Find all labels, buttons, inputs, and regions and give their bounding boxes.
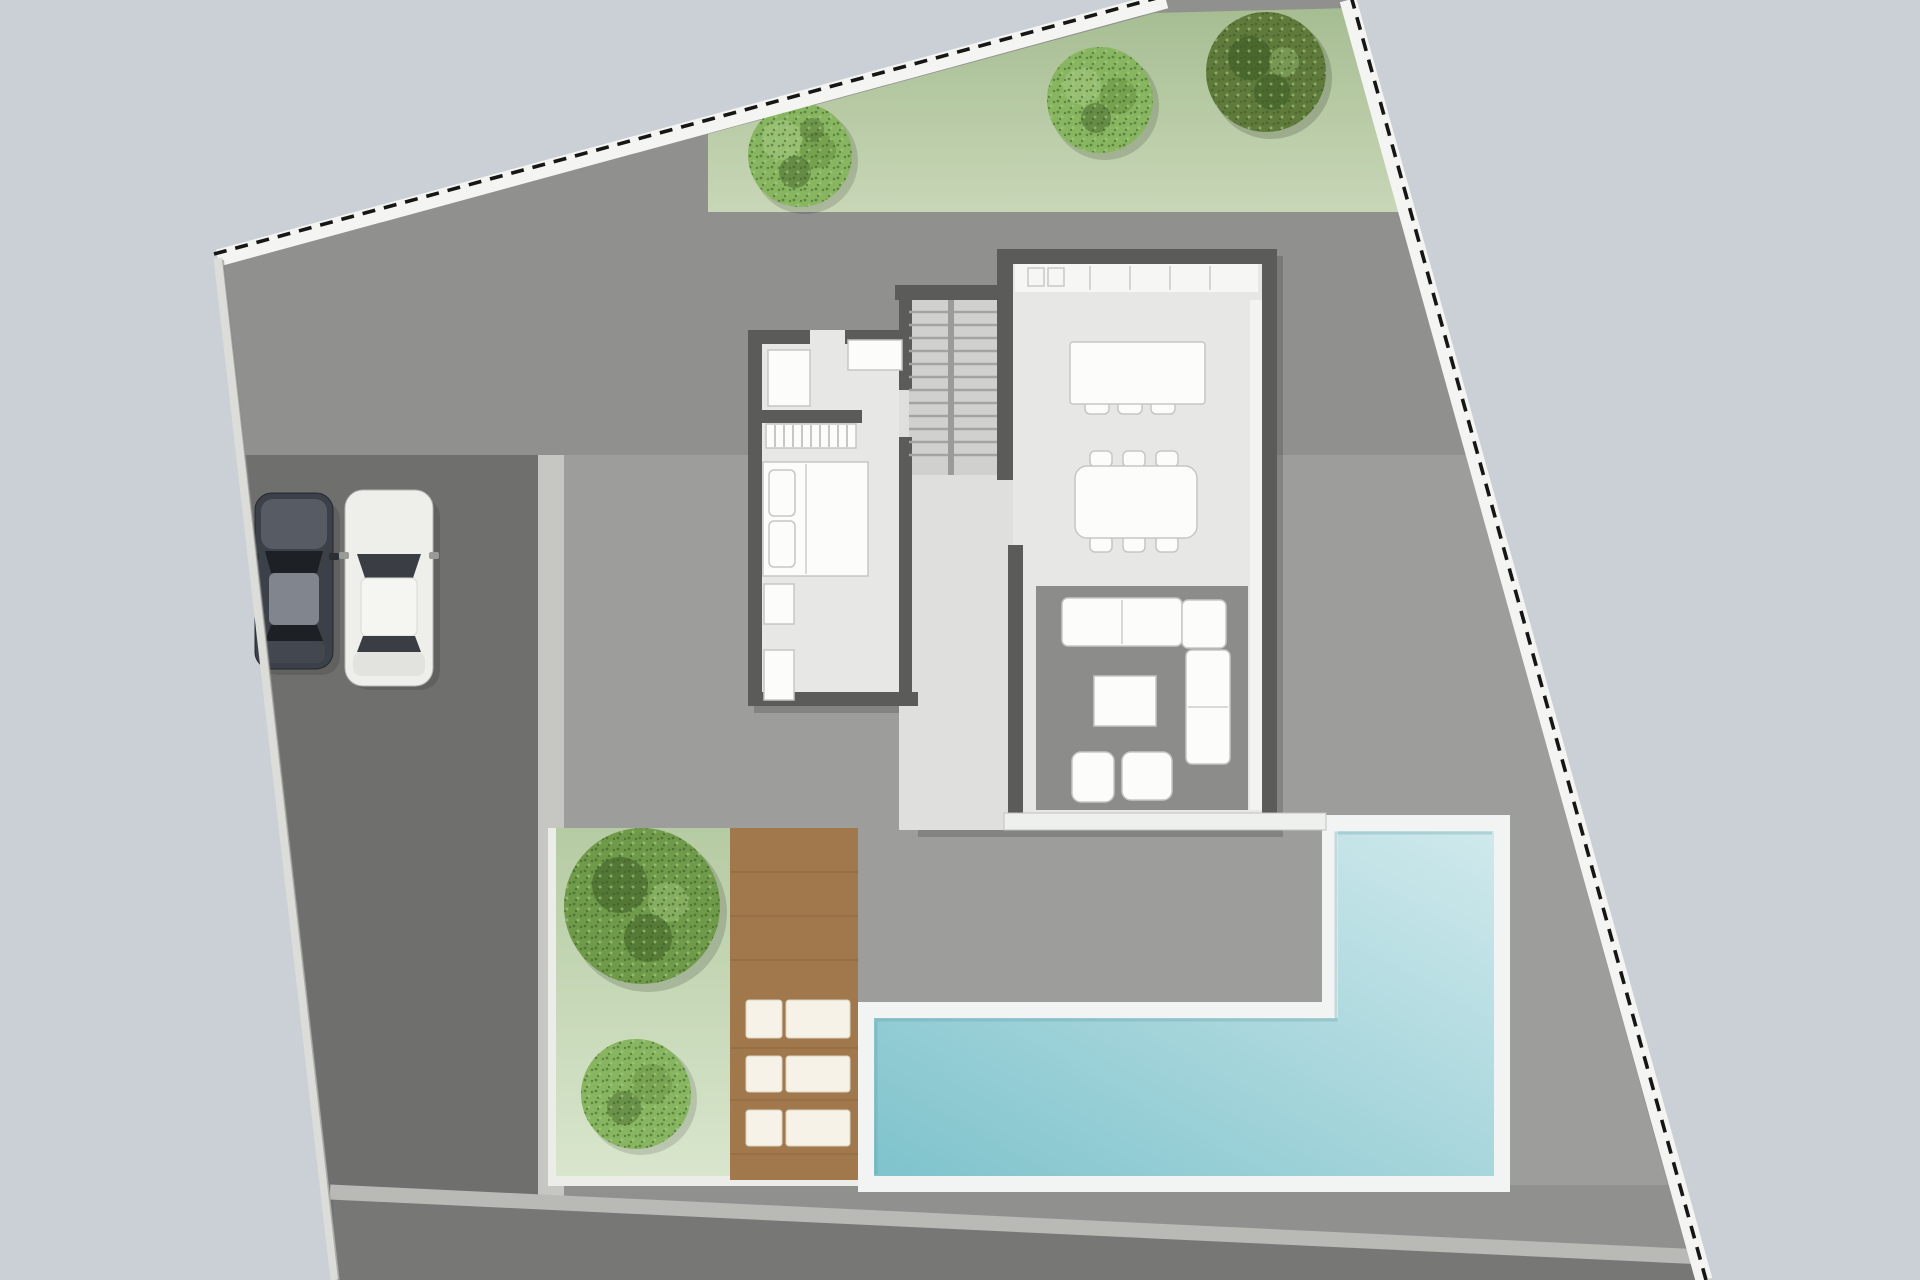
kitchen-island (1070, 342, 1205, 414)
windshield (357, 554, 421, 578)
dining-chair (1156, 451, 1178, 467)
dresser (848, 340, 902, 370)
nightstand (764, 650, 794, 700)
pillow (769, 470, 795, 516)
windshield (265, 551, 323, 573)
dining-chair (1123, 451, 1145, 467)
pouf (1072, 752, 1114, 802)
rear-window (357, 636, 421, 652)
timber-deck (730, 828, 858, 1180)
sun-lounger (746, 1056, 850, 1092)
dining-set (1075, 451, 1197, 552)
sun-lounger (746, 1110, 850, 1146)
pillow (769, 521, 795, 567)
dining-table (1075, 466, 1197, 538)
terrace-edge (1004, 813, 1326, 830)
double-bed (763, 462, 868, 576)
rear-window (265, 625, 323, 641)
trunk (353, 652, 425, 676)
side-mirror-icon (339, 552, 349, 559)
car-roof (269, 573, 319, 625)
garden-edge (548, 828, 556, 1182)
sofa-corner (1182, 600, 1226, 648)
site-plan-canvas (0, 0, 1920, 1280)
site-plan-page (0, 0, 1920, 1280)
stair-rail (948, 300, 954, 475)
sun-lounger (746, 1000, 850, 1038)
side-mirror-icon (329, 553, 339, 560)
dining-chair (1090, 451, 1112, 467)
pouf (1122, 752, 1172, 800)
car-white (339, 490, 440, 690)
dresser (768, 350, 810, 406)
wardrobe (766, 424, 856, 448)
window-wall (1250, 300, 1262, 810)
coffee-table (1094, 676, 1156, 726)
nightstand (764, 584, 794, 624)
trunk (263, 641, 325, 663)
side-mirror-icon (429, 552, 439, 559)
car-roof (361, 578, 417, 636)
